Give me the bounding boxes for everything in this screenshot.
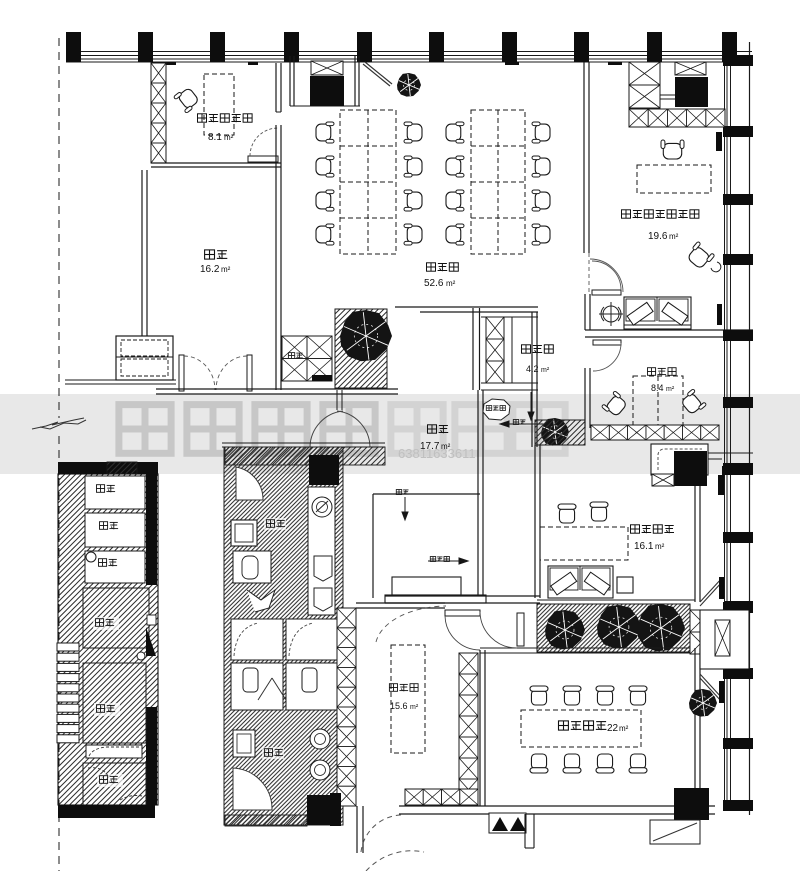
svg-text:19.6: 19.6 [648,231,668,242]
svg-text:16.2: 16.2 [200,264,220,275]
svg-text:m²: m² [619,724,629,733]
svg-text:16.1: 16.1 [634,541,654,552]
svg-text:17.7: 17.7 [420,441,440,452]
svg-text:m²: m² [441,442,451,451]
svg-text:8.1: 8.1 [208,132,222,143]
svg-text:m²: m² [221,265,231,274]
svg-text:8.4: 8.4 [651,383,664,393]
svg-text:m²: m² [446,279,456,288]
svg-text:m²: m² [224,133,234,142]
svg-text:m²: m² [410,704,419,711]
svg-text:22: 22 [607,723,619,734]
svg-text:15.6: 15.6 [390,701,408,711]
svg-text:m²: m² [666,386,675,393]
svg-text:52.6: 52.6 [424,278,444,289]
svg-text:m²: m² [669,232,679,241]
svg-text:m²: m² [541,367,550,374]
svg-text:m²: m² [655,542,665,551]
